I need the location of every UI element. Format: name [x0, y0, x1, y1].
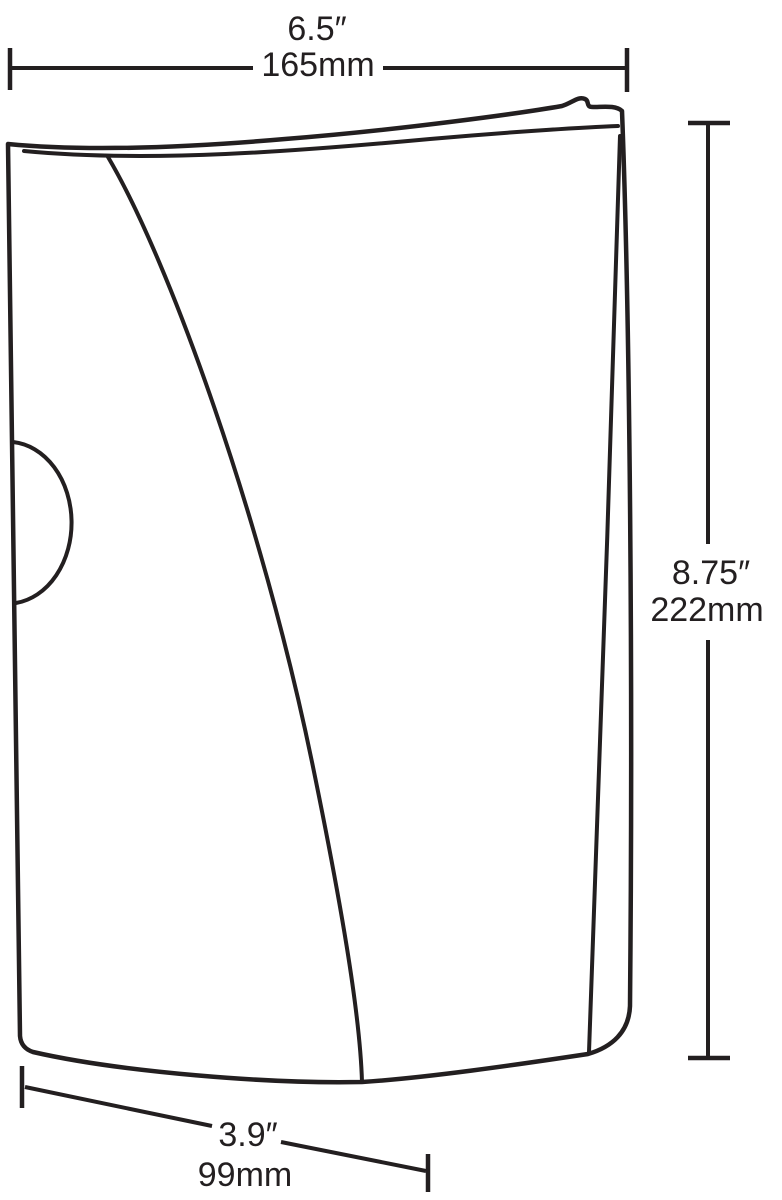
depth-dim-line-right-segment — [281, 1142, 426, 1171]
width-mm-label: 165mm — [261, 46, 374, 84]
height-inches-label: 8.75″ — [672, 554, 750, 592]
width-dimension: 6.5″ 165mm — [10, 10, 627, 92]
depth-mm-label: 99mm — [198, 1156, 292, 1194]
device-body-outline — [8, 98, 631, 1082]
height-mm-label: 222mm — [650, 591, 763, 629]
depth-dimension: 3.9″ 99mm — [22, 1066, 428, 1194]
height-dimension: 8.75″ 222mm — [650, 123, 763, 1058]
width-inches-label: 6.5″ — [287, 10, 346, 48]
depth-dim-line-left-segment — [25, 1087, 212, 1126]
diagram-page: 6.5″ 165mm 8.75″ 222mm 3.9″ 99mm — [0, 0, 782, 1200]
diagram-canvas: 6.5″ 165mm 8.75″ 222mm 3.9″ 99mm — [0, 0, 782, 1200]
device-drawing — [8, 98, 631, 1082]
depth-inches-label: 3.9″ — [218, 1116, 277, 1154]
